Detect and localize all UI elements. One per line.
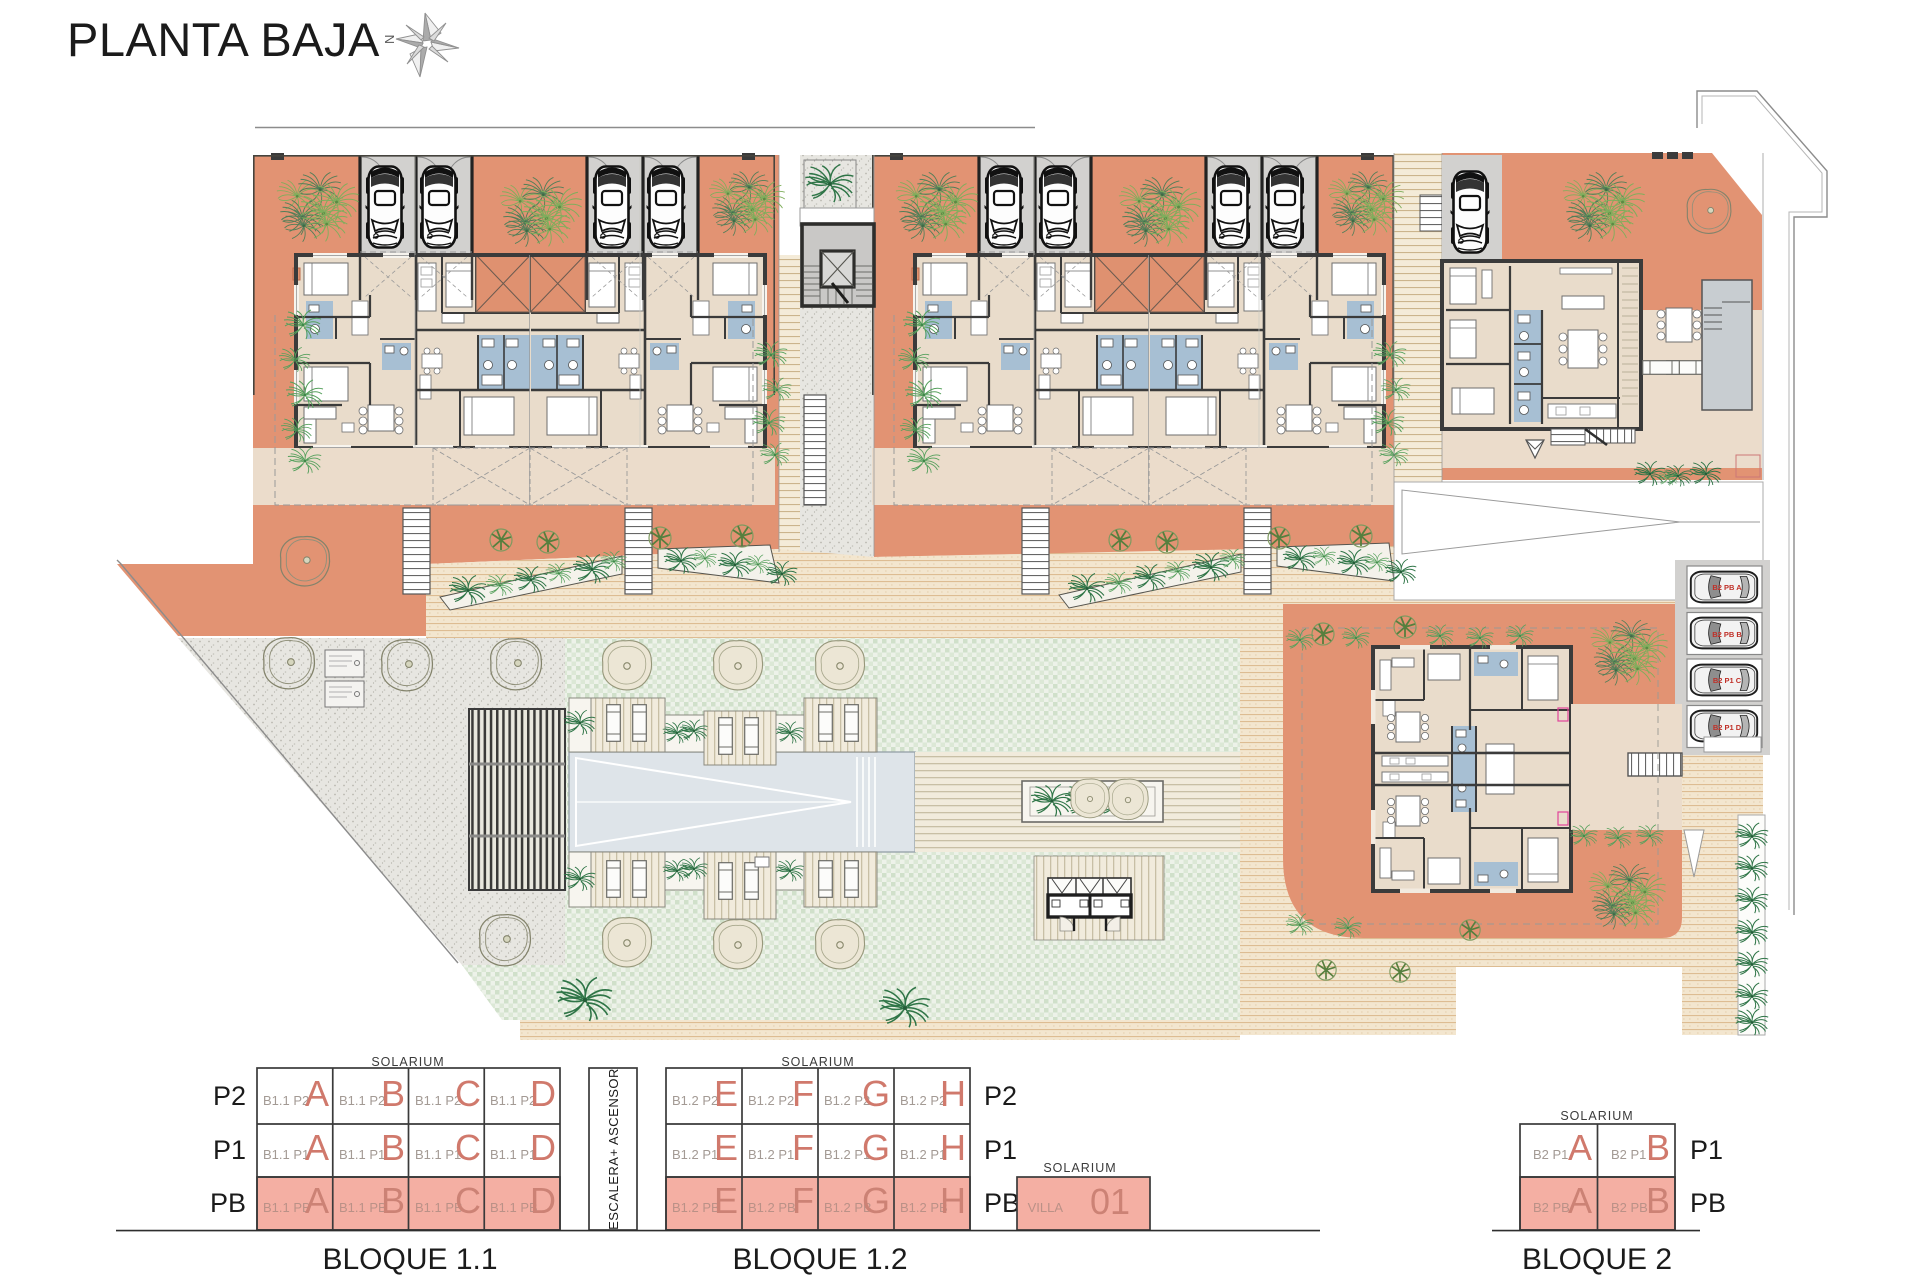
svg-text:C: C: [455, 1073, 481, 1114]
svg-text:A: A: [305, 1073, 329, 1114]
svg-text:B1.2 P2: B1.2 P2: [672, 1093, 718, 1108]
svg-text:P1: P1: [1690, 1135, 1723, 1165]
svg-text:E: E: [714, 1180, 738, 1221]
svg-text:B2 PB A: B2 PB A: [1712, 583, 1742, 592]
svg-text:C: C: [455, 1180, 481, 1221]
svg-text:B1.2 P2: B1.2 P2: [748, 1093, 794, 1108]
svg-text:A: A: [1568, 1127, 1592, 1168]
svg-text:B: B: [381, 1127, 405, 1168]
svg-text:H: H: [940, 1127, 966, 1168]
svg-text:P1: P1: [984, 1135, 1017, 1165]
svg-text:B1.1 P1: B1.1 P1: [339, 1147, 385, 1162]
svg-text:BLOQUE 1.1: BLOQUE 1.1: [322, 1243, 497, 1276]
svg-text:B2 P1 D: B2 P1 D: [1713, 723, 1742, 732]
svg-text:B1.2 PB: B1.2 PB: [672, 1200, 720, 1215]
svg-text:PLANTA BAJA: PLANTA BAJA: [67, 13, 380, 66]
svg-text:B1.1 P2: B1.1 P2: [339, 1093, 385, 1108]
svg-text:A: A: [305, 1180, 329, 1221]
svg-text:B1.2 P1: B1.2 P1: [748, 1147, 794, 1162]
svg-text:PB: PB: [984, 1188, 1020, 1218]
svg-text:SOLARIUM: SOLARIUM: [1043, 1161, 1116, 1175]
svg-text:F: F: [792, 1180, 814, 1221]
svg-text:H: H: [940, 1073, 966, 1114]
svg-text:ESCALERA+ ASCENSOR: ESCALERA+ ASCENSOR: [606, 1068, 621, 1230]
svg-text:B1.1 P2: B1.1 P2: [263, 1093, 309, 1108]
svg-text:P1: P1: [213, 1135, 246, 1165]
svg-text:D: D: [530, 1180, 556, 1221]
svg-text:N: N: [382, 35, 397, 44]
svg-text:B: B: [381, 1073, 405, 1114]
svg-text:P2: P2: [213, 1081, 246, 1111]
svg-text:P2: P2: [984, 1081, 1017, 1111]
svg-text:BLOQUE 1.2: BLOQUE 1.2: [732, 1243, 907, 1276]
svg-text:PB: PB: [1690, 1188, 1726, 1218]
svg-text:SOLARIUM: SOLARIUM: [781, 1055, 854, 1069]
svg-text:BLOQUE 2: BLOQUE 2: [1522, 1243, 1672, 1276]
svg-text:B1.1 PB: B1.1 PB: [339, 1200, 387, 1215]
svg-text:G: G: [862, 1127, 890, 1168]
svg-text:VILLA: VILLA: [1028, 1200, 1064, 1215]
svg-text:B: B: [1646, 1127, 1670, 1168]
svg-text:B: B: [381, 1180, 405, 1221]
svg-text:B2 PB: B2 PB: [1611, 1200, 1648, 1215]
svg-text:B1.2 P1: B1.2 P1: [672, 1147, 718, 1162]
svg-text:A: A: [1568, 1180, 1592, 1221]
svg-text:G: G: [862, 1073, 890, 1114]
svg-text:B: B: [1646, 1180, 1670, 1221]
svg-text:E: E: [714, 1127, 738, 1168]
svg-text:SOLARIUM: SOLARIUM: [1560, 1109, 1633, 1123]
svg-text:A: A: [305, 1127, 329, 1168]
svg-text:B1.2 PB: B1.2 PB: [748, 1200, 796, 1215]
svg-text:H: H: [940, 1180, 966, 1221]
svg-text:B2 PB: B2 PB: [1533, 1200, 1570, 1215]
svg-text:B2 P1 C: B2 P1 C: [1713, 676, 1742, 685]
svg-text:PB: PB: [210, 1188, 246, 1218]
svg-text:F: F: [792, 1127, 814, 1168]
svg-text:B2 P1: B2 P1: [1611, 1147, 1646, 1162]
svg-text:B1.1 P1: B1.1 P1: [263, 1147, 309, 1162]
svg-text:C: C: [455, 1127, 481, 1168]
svg-text:B2 P1: B2 P1: [1533, 1147, 1568, 1162]
svg-text:01: 01: [1090, 1181, 1130, 1222]
svg-text:D: D: [530, 1127, 556, 1168]
svg-text:D: D: [530, 1073, 556, 1114]
svg-text:E: E: [714, 1073, 738, 1114]
svg-text:G: G: [862, 1180, 890, 1221]
svg-text:SOLARIUM: SOLARIUM: [371, 1055, 444, 1069]
svg-text:F: F: [792, 1073, 814, 1114]
svg-text:B2 PB B: B2 PB B: [1712, 630, 1742, 639]
svg-text:B1.1 PB: B1.1 PB: [263, 1200, 311, 1215]
